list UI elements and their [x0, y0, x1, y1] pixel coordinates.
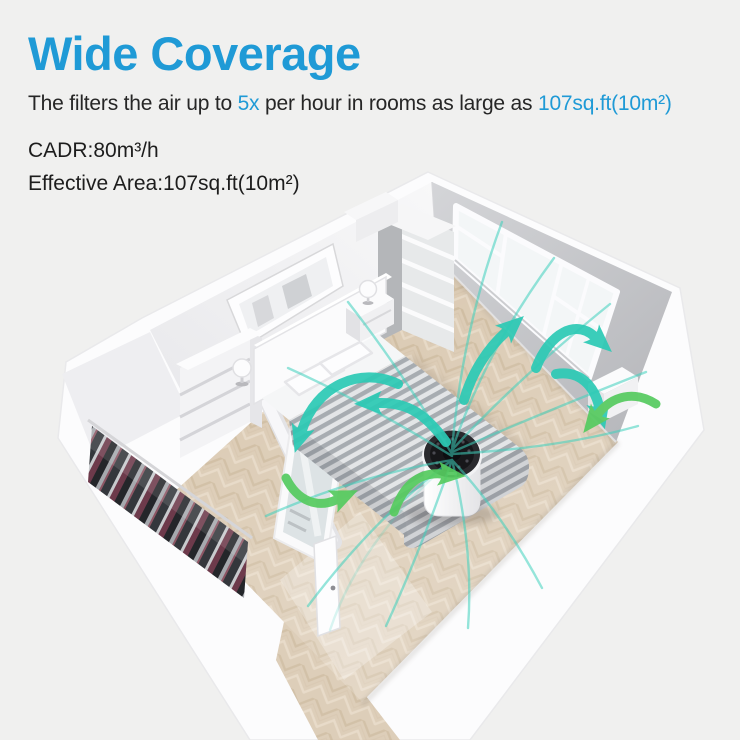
- page-title: Wide Coverage: [28, 26, 361, 81]
- subtitle-text-2: per hour in rooms as large as: [259, 92, 538, 115]
- room-illustration: [0, 160, 740, 740]
- spec-effective-area: Effective Area:107sq.ft(10m²): [28, 172, 300, 196]
- door-leaf: [314, 536, 340, 636]
- subtitle-highlight-area: 107sq.ft(10m²): [538, 92, 672, 115]
- door: [314, 536, 340, 636]
- spec-cadr: CADR:80m³/h: [28, 139, 159, 163]
- subtitle: The filters the air up to 5x per hour in…: [28, 92, 672, 116]
- door-handle: [331, 586, 336, 591]
- page: Wide Coverage The filters the air up to …: [0, 0, 740, 740]
- subtitle-highlight-rate: 5x: [238, 92, 260, 115]
- subtitle-text-1: The filters the air up to: [28, 92, 238, 115]
